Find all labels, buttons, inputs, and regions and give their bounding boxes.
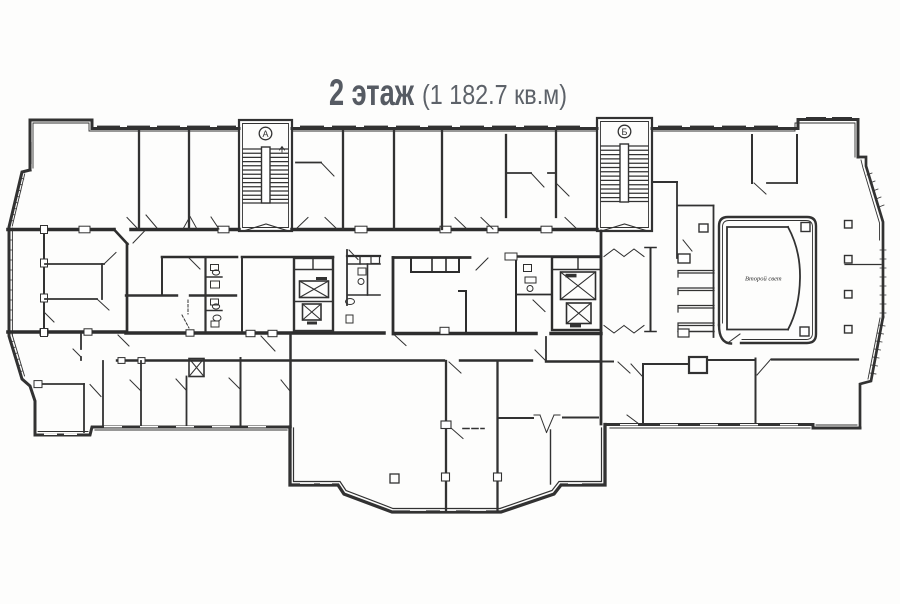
svg-text:2 этаж: 2 этаж (329, 72, 415, 113)
svg-text:А: А (262, 129, 268, 139)
svg-text:(1 182.7 кв.м): (1 182.7 кв.м) (422, 79, 567, 110)
svg-text:Второй свет: Второй свет (745, 276, 782, 283)
svg-text:Б: Б (622, 127, 628, 137)
